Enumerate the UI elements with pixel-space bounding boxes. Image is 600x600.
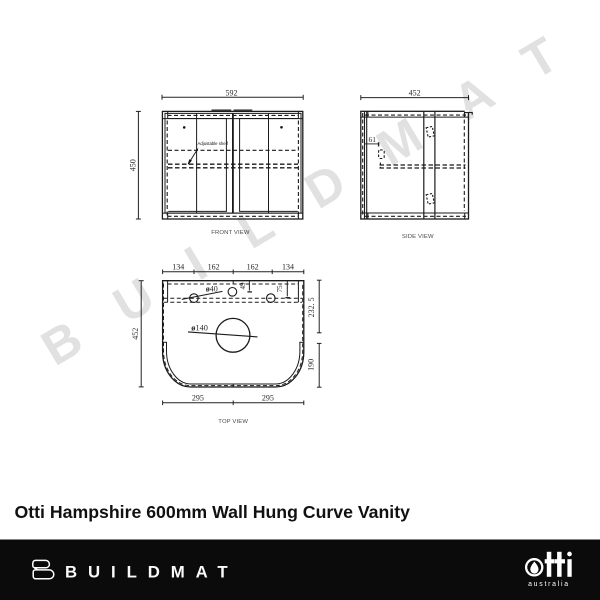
svg-text:ø140: ø140 (191, 324, 208, 333)
svg-text:134: 134 (172, 262, 184, 271)
svg-text:Otti Hampshire 600mm Wall Hung: Otti Hampshire 600mm Wall Hung Curve Van… (15, 502, 411, 522)
svg-text:FRONT VIEW: FRONT VIEW (211, 230, 250, 236)
svg-text:162: 162 (247, 262, 259, 271)
svg-text:SIDE VIEW: SIDE VIEW (402, 234, 434, 240)
svg-text:190: 190 (307, 359, 316, 371)
svg-text:134: 134 (282, 262, 294, 271)
svg-text:75: 75 (276, 285, 284, 293)
svg-text:49: 49 (239, 282, 247, 290)
svg-text:61: 61 (368, 135, 376, 144)
svg-text:295: 295 (192, 394, 204, 403)
svg-text:BUILDMAT: BUILDMAT (65, 563, 239, 582)
svg-text:TOP VIEW: TOP VIEW (218, 419, 248, 425)
svg-text:450: 450 (128, 159, 137, 171)
svg-text:592: 592 (226, 89, 238, 98)
svg-text:452: 452 (131, 328, 140, 340)
svg-text:ø40: ø40 (206, 284, 218, 293)
svg-text:162: 162 (208, 262, 220, 271)
svg-text:295: 295 (262, 394, 274, 403)
svg-text:232. 5: 232. 5 (307, 297, 316, 317)
svg-text:BUILDMAT: BUILDMAT (32, 2, 600, 376)
svg-text:452: 452 (409, 89, 421, 98)
svg-text:australia: australia (528, 581, 570, 588)
svg-text:Adjustable shelf: Adjustable shelf (198, 141, 229, 146)
